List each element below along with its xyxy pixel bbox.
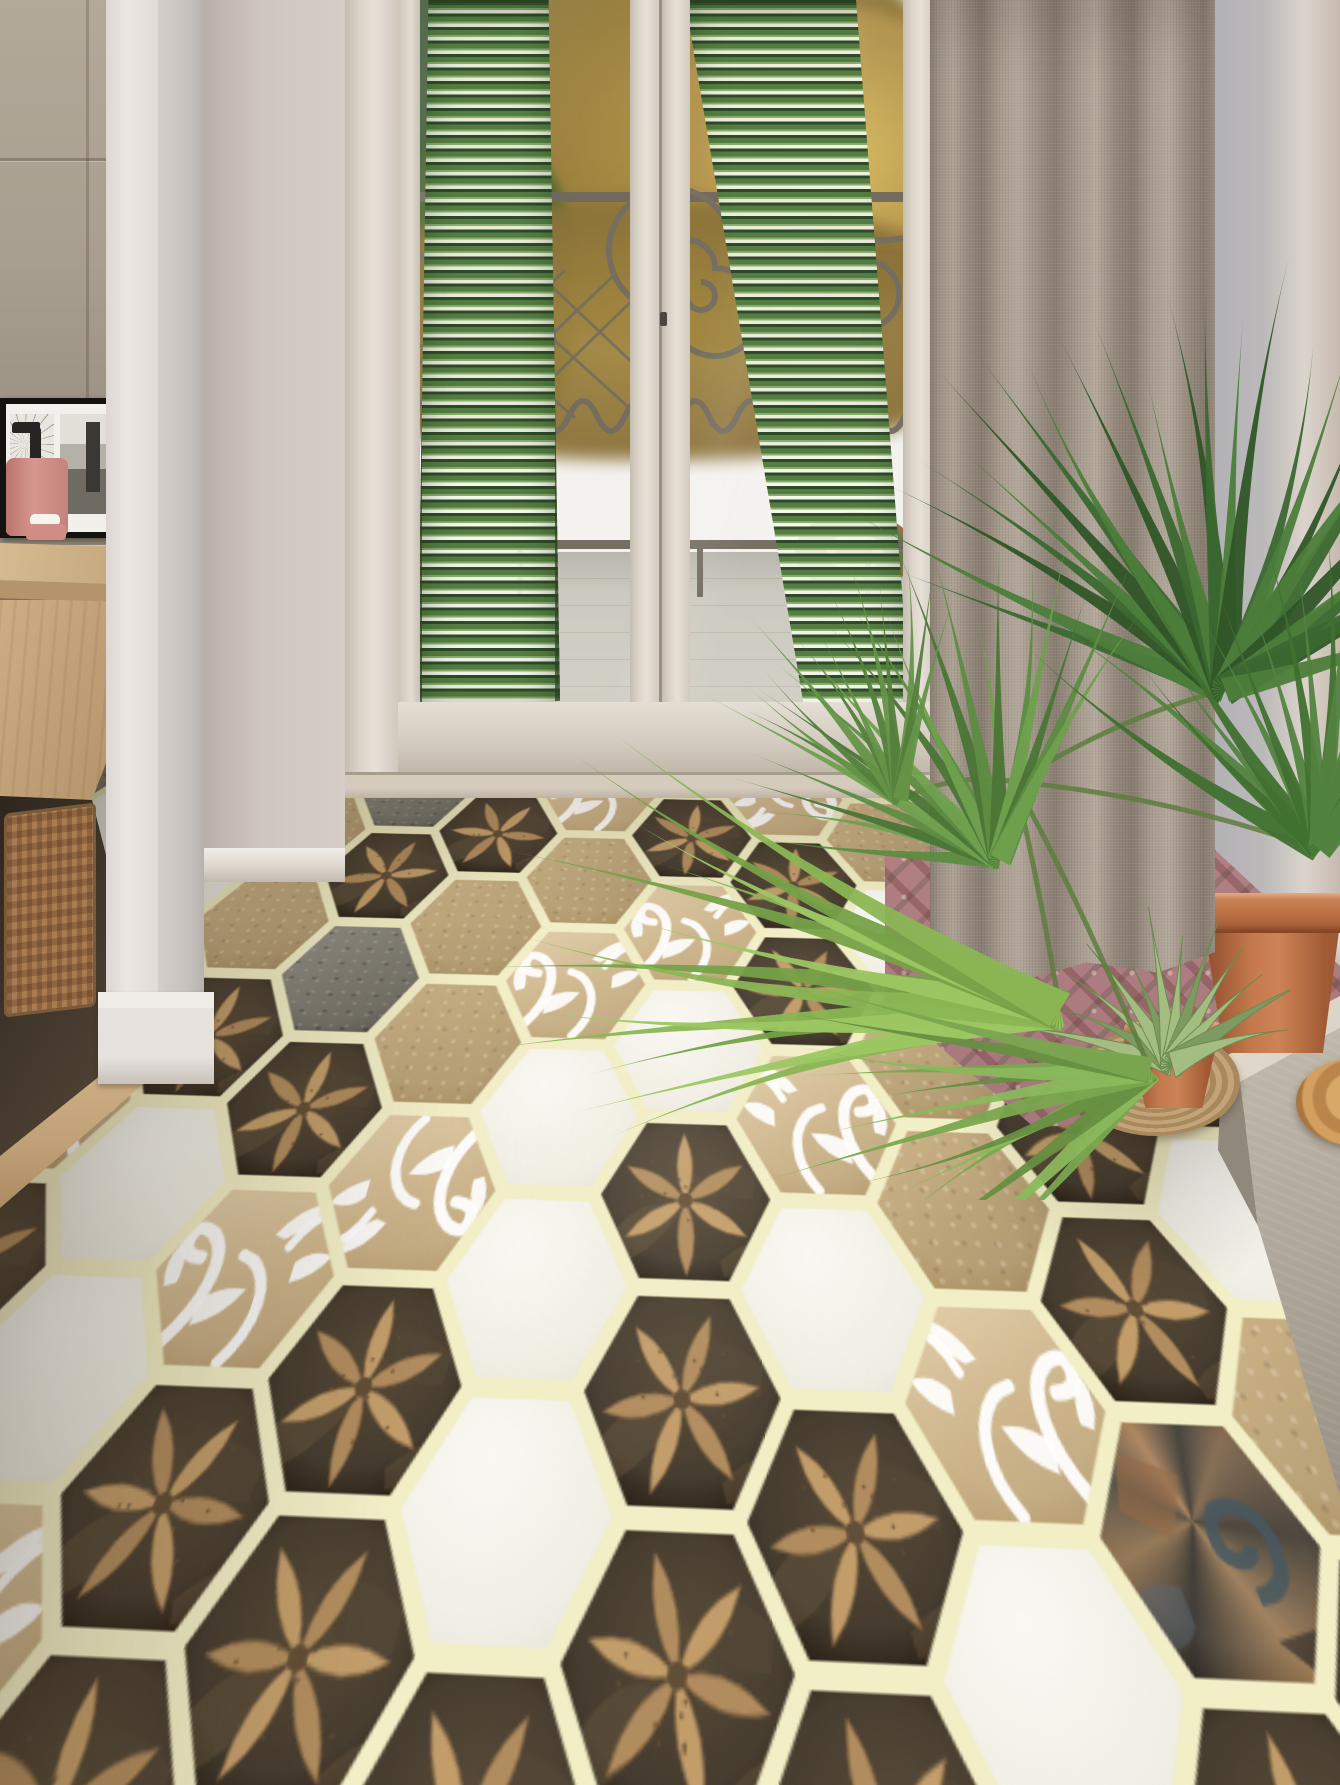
left-green-shutter [417,0,560,715]
floor-tile-w [609,989,766,1113]
right-wall [1213,0,1340,970]
baseboard-left [204,848,345,882]
right-door-inner-stile [662,0,690,774]
pillar [106,0,158,1000]
tile-pattern [620,884,759,982]
tile-pattern [574,1294,786,1512]
pillar-side [158,0,204,1000]
pot-rim [1124,1022,1222,1048]
tile-pattern [629,799,754,879]
pot-body [1130,1046,1216,1108]
door-bottom-rail [398,702,935,774]
floor-tile-d [620,884,759,982]
door-frame-left [345,0,398,774]
pot-rim [1197,893,1340,933]
pink-dish [26,524,66,540]
interior-scene: Bathroom hallway with patchwork hexagon … [0,0,1340,1785]
tile-grout-line [86,0,89,430]
linen-curtain [930,0,1215,1008]
vanity-area [0,0,216,1785]
wall-left-of-door [204,0,345,882]
pillar-baseboard [98,992,214,1084]
tile-pattern [594,1122,774,1283]
french-doors [345,0,935,800]
floor-tile-f [629,799,754,879]
floor-tile-f [574,1294,786,1512]
floor-tile-f [594,1122,774,1283]
left-door-stile [398,0,420,774]
terracotta-pot-small [1124,1022,1222,1112]
wicker-basket [4,802,96,1017]
pot-body [1205,931,1339,1053]
left-door-inner-stile [630,0,660,774]
door-threshold [345,772,935,798]
door-hinge [660,312,667,326]
building-silhouette [86,422,100,492]
